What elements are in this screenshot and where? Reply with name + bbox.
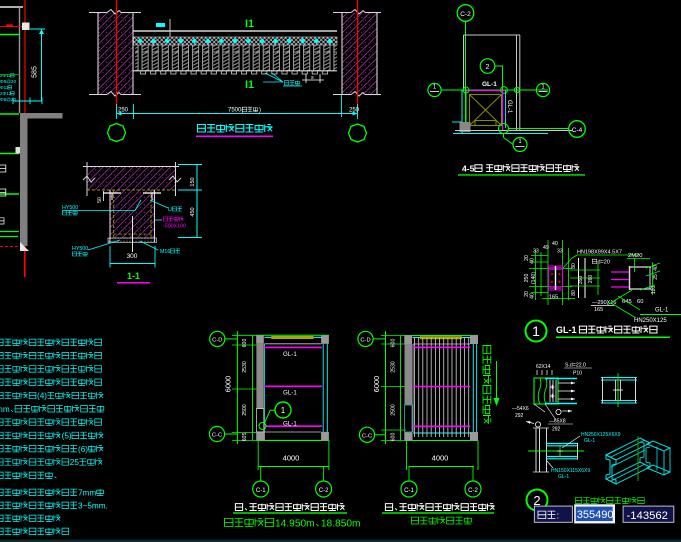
- svg-text:d=20: d=20: [598, 260, 610, 266]
- svg-text:C-D: C-D: [212, 338, 222, 344]
- svg-text:1: 1: [281, 406, 286, 415]
- svg-text:U: U: [168, 207, 172, 213]
- svg-text:C-2: C-2: [319, 488, 329, 494]
- svg-text:C-2: C-2: [460, 11, 471, 18]
- svg-text:292: 292: [515, 413, 524, 419]
- svg-text:40: 40: [552, 241, 558, 247]
- svg-text:2500: 2500: [242, 404, 248, 416]
- svg-text:14.950m: 14.950m: [275, 519, 315, 530]
- svg-text:-500X100: -500X100: [163, 224, 186, 230]
- svg-text:3~5mm.: 3~5mm.: [78, 502, 108, 511]
- svg-text:M16: M16: [160, 249, 170, 255]
- svg-text:585: 585: [32, 66, 39, 78]
- svg-text:600: 600: [391, 339, 397, 348]
- svg-text:Φ8@20: Φ8@20: [0, 79, 16, 84]
- svg-text::: :: [557, 511, 560, 522]
- svg-text:250: 250: [349, 108, 360, 114]
- svg-text:49: 49: [543, 245, 549, 251]
- svg-text:C-4: C-4: [572, 127, 583, 134]
- svg-text:(140): (140): [531, 272, 537, 284]
- svg-text:120: 120: [651, 286, 657, 295]
- svg-text:600: 600: [391, 433, 397, 442]
- svg-text:600: 600: [242, 339, 248, 348]
- svg-text:I1: I1: [245, 79, 254, 91]
- svg-text:C-1: C-1: [404, 488, 414, 494]
- svg-text:HN150X115X6X9: HN150X115X6X9: [551, 468, 590, 474]
- svg-text:605: 605: [242, 433, 248, 442]
- svg-text:GL-1: GL-1: [556, 325, 577, 335]
- svg-text:250: 250: [118, 108, 129, 114]
- svg-text:C-2: C-2: [468, 488, 478, 494]
- svg-text:60: 60: [637, 299, 643, 305]
- svg-text:2Φ12: 2Φ12: [0, 73, 12, 78]
- svg-text:(4): (4): [37, 392, 47, 401]
- svg-text:25: 25: [653, 274, 659, 280]
- svg-text:GL-1: GL-1: [283, 390, 297, 397]
- svg-text:33: 33: [533, 249, 539, 255]
- svg-text:6000: 6000: [224, 376, 233, 393]
- svg-text:300: 300: [127, 253, 138, 260]
- svg-text:165: 165: [594, 307, 603, 313]
- svg-text:4-5: 4-5: [462, 164, 475, 174]
- svg-text:—290X16: —290X16: [592, 300, 616, 306]
- svg-text:165: 165: [549, 295, 558, 301]
- svg-text:1-1: 1-1: [127, 271, 140, 281]
- svg-text:HY500: HY500: [72, 246, 88, 252]
- svg-text:350: 350: [578, 276, 584, 285]
- svg-text:62X14: 62X14: [536, 364, 551, 370]
- svg-text:GL-1: GL-1: [655, 308, 669, 314]
- svg-text:-143562: -143562: [627, 510, 668, 522]
- svg-text:260: 260: [588, 275, 594, 284]
- svg-text:(6): (6): [78, 445, 88, 454]
- svg-text:50: 50: [97, 197, 103, 203]
- svg-text:6000: 6000: [372, 376, 381, 393]
- svg-text:C-C: C-C: [362, 433, 372, 439]
- svg-text:GL-1: GL-1: [506, 100, 512, 114]
- svg-text:4000: 4000: [283, 454, 300, 463]
- svg-text:C-1: C-1: [256, 488, 266, 494]
- svg-text:355490: 355490: [577, 509, 614, 521]
- svg-text:2500: 2500: [391, 404, 397, 416]
- svg-text:40: 40: [530, 258, 536, 264]
- svg-text:2530: 2530: [391, 361, 397, 373]
- svg-text:—65X8: —65X8: [549, 419, 566, 425]
- svg-text:40: 40: [653, 265, 659, 271]
- svg-text:1: 1: [532, 323, 540, 339]
- svg-text:80: 80: [571, 290, 577, 296]
- svg-text:25: 25: [70, 458, 80, 467]
- svg-text:GL-1: GL-1: [283, 351, 297, 358]
- svg-text:GL-1: GL-1: [283, 420, 297, 427]
- svg-text:I1: I1: [245, 18, 254, 30]
- svg-text:150: 150: [190, 177, 196, 186]
- svg-text:P10: P10: [573, 371, 582, 377]
- svg-text:—54X6: —54X6: [512, 406, 529, 412]
- svg-text:s: s: [311, 75, 314, 81]
- svg-text:C-C: C-C: [212, 433, 222, 439]
- svg-text:4000: 4000: [432, 454, 449, 463]
- svg-text:mm: mm: [0, 405, 10, 414]
- svg-text:GL-1: GL-1: [558, 474, 569, 480]
- svg-text:): ): [259, 108, 261, 114]
- svg-text:(5): (5): [62, 432, 72, 441]
- svg-text:HN250X125: HN250X125: [634, 318, 667, 324]
- svg-text:2530: 2530: [242, 361, 248, 373]
- svg-text:2: 2: [486, 64, 490, 71]
- svg-text:2Φ12: 2Φ12: [0, 91, 12, 96]
- svg-text:GL-1: GL-1: [584, 438, 595, 444]
- svg-text:7500(: 7500(: [228, 108, 243, 114]
- svg-text:GL-1: GL-1: [482, 81, 497, 88]
- svg-text:33: 33: [557, 249, 563, 255]
- svg-text:292: 292: [552, 427, 561, 433]
- svg-text:250: 250: [524, 274, 530, 283]
- svg-text:7mm: 7mm: [78, 489, 96, 498]
- svg-text:40: 40: [530, 293, 536, 299]
- svg-text:18.850m: 18.850m: [321, 519, 361, 530]
- svg-text:80: 80: [571, 263, 577, 269]
- svg-text:450: 450: [190, 207, 196, 216]
- svg-text:S.d=22.0: S.d=22.0: [565, 363, 586, 369]
- svg-text:C-D: C-D: [360, 338, 370, 344]
